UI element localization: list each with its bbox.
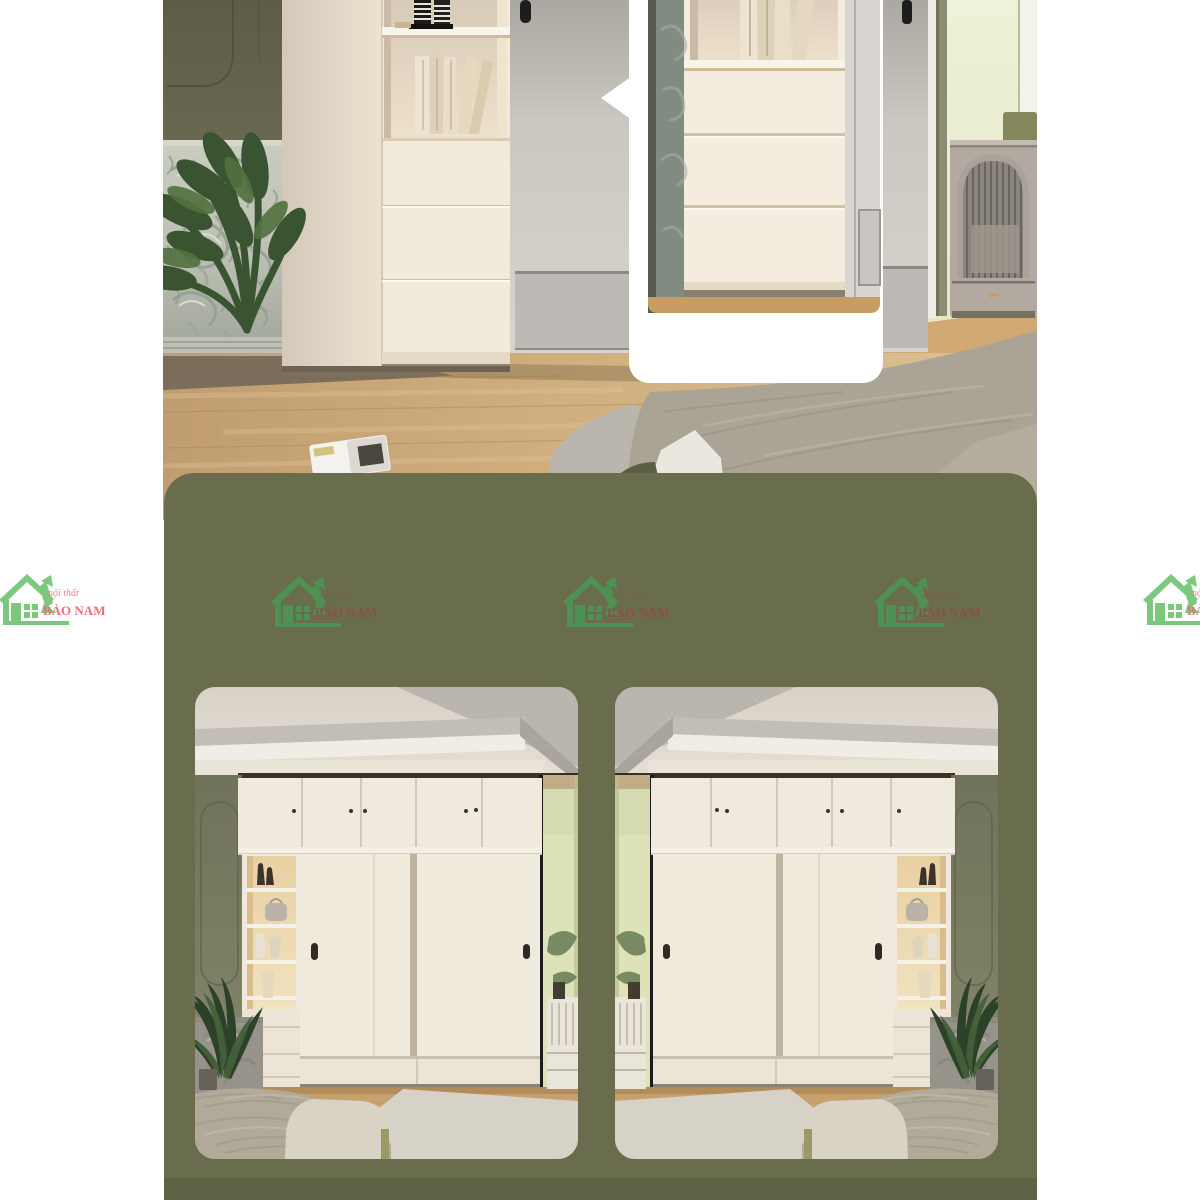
svg-text:BẢO NAM: BẢO NAM bbox=[1187, 603, 1200, 618]
svg-text:BẢO NAM: BẢO NAM bbox=[315, 605, 377, 620]
svg-text:nội thất: nội thất bbox=[612, 590, 643, 601]
svg-text:nội thất: nội thất bbox=[48, 588, 79, 599]
svg-text:nội thất: nội thất bbox=[320, 590, 351, 601]
svg-text:nội thất: nội thất bbox=[1192, 588, 1200, 599]
svg-text:nội thất: nội thất bbox=[923, 590, 954, 601]
svg-text:BẢO NAM: BẢO NAM bbox=[43, 603, 105, 618]
svg-text:BẢO NAM: BẢO NAM bbox=[918, 605, 980, 620]
svg-text:BẢO NAM: BẢO NAM bbox=[607, 605, 669, 620]
